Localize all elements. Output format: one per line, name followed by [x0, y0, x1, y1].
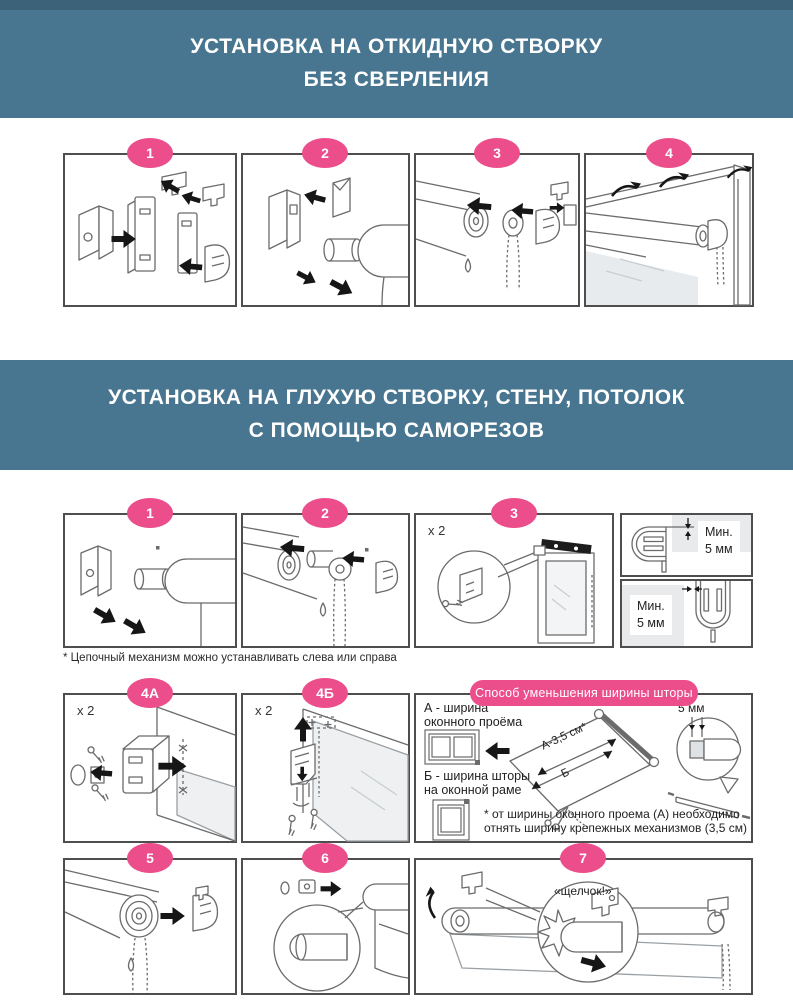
panel-s2-step2	[241, 513, 410, 648]
panel-s2-step5	[63, 858, 237, 995]
section2-title-line1: УСТАНОВКА НА ГЛУХУЮ СТВОРКУ, СТЕНУ, ПОТО…	[108, 382, 685, 415]
width-label-b-line2: на оконной раме	[424, 783, 522, 797]
step-badge: 1	[127, 138, 173, 168]
s2-step6-illustration-tube-detail	[243, 860, 408, 993]
s1-step4-illustration-tilt-window	[586, 155, 752, 305]
quantity-label: x 2	[255, 703, 272, 718]
step-badge: 2	[302, 498, 348, 528]
min-label-line2: 5 мм	[637, 615, 665, 632]
width-label-a-line2: оконного проёма	[424, 715, 522, 729]
s2-step2-illustration-chain-side	[243, 515, 408, 646]
step-badge: 2	[302, 138, 348, 168]
step-badge: 4А	[127, 678, 173, 708]
width-label-b-line1: Б - ширина шторы	[424, 769, 530, 783]
min-clearance-label: Мин. 5 мм	[698, 521, 740, 561]
window-opening-illustration	[424, 729, 480, 765]
width-reduction-title-pill: Способ уменьшения ширины шторы	[470, 680, 698, 706]
section2-title-banner: УСТАНОВКА НА ГЛУХУЮ СТВОРКУ, СТЕНУ, ПОТО…	[0, 360, 793, 470]
quantity-label: x 2	[77, 703, 94, 718]
section1-title-banner: УСТАНОВКА НА ОТКИДНУЮ СТВОРКУ БЕЗ СВЕРЛЕ…	[0, 10, 793, 118]
step-badge: 4Б	[302, 678, 348, 708]
s2-step7-illustration-click-lock	[416, 860, 751, 993]
panel-s2-step7: «щелчок!»	[414, 858, 753, 995]
panel-width-reduction: А - ширина оконного проёма Б - ширина шт…	[414, 693, 753, 843]
click-label: «щелчок!»	[554, 884, 612, 898]
min-label-line1: Мин.	[705, 524, 733, 541]
step-badge: 3	[474, 138, 520, 168]
step-badge: 4	[646, 138, 692, 168]
s2-step1-illustration-bracket-adapter	[65, 515, 235, 646]
step-badge: 7	[560, 843, 606, 873]
min-label-line1: Мин.	[637, 598, 665, 615]
section1-title-line1: УСТАНОВКА НА ОТКИДНУЮ СТВОРКУ	[190, 31, 602, 64]
panel-s2-step1	[63, 513, 237, 648]
section1-title-line2: БЕЗ СВЕРЛЕНИЯ	[304, 64, 490, 97]
s2-step3-illustration-level-window	[416, 515, 612, 646]
page-top-strip	[0, 0, 793, 10]
panel-s1-step1	[63, 153, 237, 307]
s1-step2-illustration-adhesive-adapter	[243, 155, 408, 305]
instruction-sheet: УСТАНОВКА НА ОТКИДНУЮ СТВОРКУ БЕЗ СВЕРЛЕ…	[0, 0, 793, 1000]
min-clearance-label: Мин. 5 мм	[630, 595, 672, 635]
step-badge: 6	[302, 843, 348, 873]
panel-s2-step4a: x 2	[63, 693, 237, 843]
step-badge: 3	[491, 498, 537, 528]
width-note-line1: * от ширины оконного проема (А) необходи…	[484, 807, 740, 821]
panel-s2-step4b: x 2	[241, 693, 410, 843]
panel-s1-step3	[414, 153, 580, 307]
footnote-chain-side: * Цепочный механизм можно устанавливать …	[63, 652, 397, 664]
min-label-line2: 5 мм	[705, 541, 733, 558]
s2-step5-illustration-endcap	[65, 860, 235, 993]
s1-step3-illustration-chain-mechanism	[416, 155, 578, 305]
step-badge: 5	[127, 843, 173, 873]
panel-s1-step2	[241, 153, 410, 307]
width-note-line2: отнять ширину крепежных механизмов (3,5 …	[484, 821, 747, 835]
panel-s2-step3: x 2	[414, 513, 614, 648]
section2-title-line2: С ПОМОЩЬЮ САМОРЕЗОВ	[249, 415, 545, 448]
quantity-label: x 2	[428, 523, 445, 538]
panel-min-clearance-bottom: Мин. 5 мм	[620, 579, 753, 648]
step-badge: 1	[127, 498, 173, 528]
panel-min-clearance-top: Мин. 5 мм	[620, 513, 753, 577]
panel-s2-step6	[241, 858, 410, 995]
s1-step1-illustration-brackets-assembly	[65, 155, 235, 305]
window-frame-illustration	[432, 799, 470, 841]
panel-s1-step4	[584, 153, 754, 307]
